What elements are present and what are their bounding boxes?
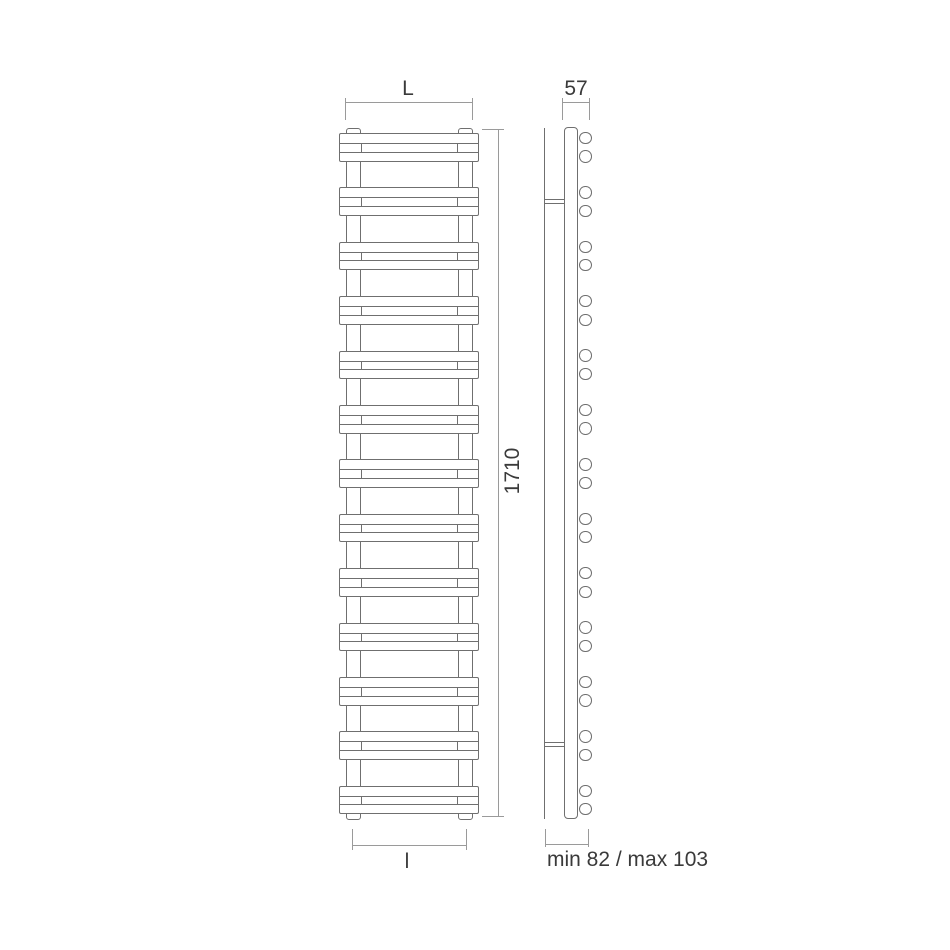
bar-end-circle <box>579 205 591 217</box>
bar-end-circle <box>579 458 591 470</box>
bar-end-circle <box>579 241 591 253</box>
bar-end-circle <box>579 295 591 307</box>
bar-end-circle <box>579 477 591 489</box>
dim-wall-line <box>545 844 589 845</box>
dim-height-line <box>498 129 499 817</box>
bar-end-circle <box>579 186 591 198</box>
dim-height-ext-top <box>482 129 504 130</box>
dim-interaxis-ext-left <box>352 829 353 850</box>
dim-depth-line <box>562 102 590 103</box>
mounting-bracket <box>545 742 565 748</box>
bar-end-circle <box>579 314 591 326</box>
bar-end-circle <box>579 531 591 543</box>
bar-end-circle <box>579 676 591 688</box>
dim-height-label: 1710 <box>501 431 525 511</box>
dim-interaxis-ext-right <box>466 829 467 850</box>
bar-end-circle <box>579 422 591 434</box>
bar-end-circle <box>579 404 591 416</box>
dim-interaxis-label: l <box>387 850 427 874</box>
bar-end-circle <box>579 803 591 815</box>
bar-end-circle <box>579 749 591 761</box>
bar-end-circle <box>579 259 591 271</box>
dim-height-ext-bottom <box>482 816 504 817</box>
dim-width-line <box>345 102 473 103</box>
dim-width-label: L <box>388 77 428 101</box>
radiator-technical-drawing: L 1710 l 57 min 82 / max 103 <box>0 0 950 950</box>
bar-end-circle <box>579 730 591 742</box>
bar-end-circle <box>579 513 591 525</box>
dim-wall-label: min 82 / max 103 <box>547 848 708 872</box>
collector-tube-side <box>564 127 578 819</box>
bar-end-circle <box>579 621 591 633</box>
dim-interaxis-line <box>352 845 467 846</box>
bar-end-circle <box>579 640 591 652</box>
bar-end-circle <box>579 368 591 380</box>
wall-line <box>544 128 545 819</box>
mounting-bracket <box>545 199 565 205</box>
bar-end-circle <box>579 349 591 361</box>
bar-end-circle <box>579 785 591 797</box>
bar-end-circle <box>579 586 591 598</box>
bar-end-circle <box>579 567 591 579</box>
bar-end-circle <box>579 694 591 706</box>
bar-end-circle <box>579 132 591 144</box>
bar-end-circle <box>579 150 591 162</box>
side-view <box>0 0 950 950</box>
